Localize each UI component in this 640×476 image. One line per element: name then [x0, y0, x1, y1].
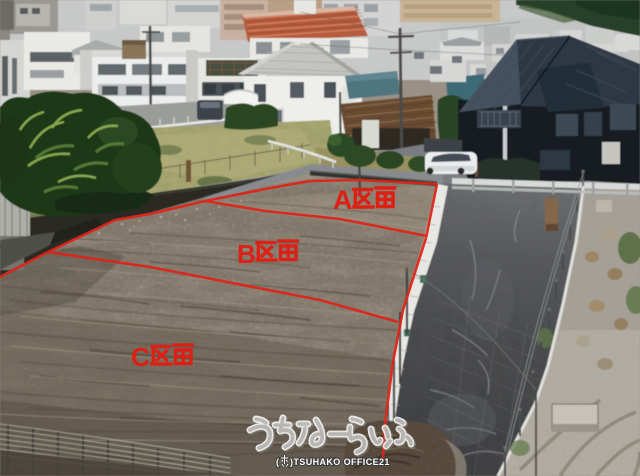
svg-text:C: C	[131, 342, 150, 372]
svg-text:A: A	[333, 185, 353, 215]
svg-text:B: B	[237, 239, 256, 269]
svg-text:(: (	[276, 457, 279, 467]
svg-text:)TSUHAKO OFFICE21: )TSUHAKO OFFICE21	[290, 457, 390, 467]
